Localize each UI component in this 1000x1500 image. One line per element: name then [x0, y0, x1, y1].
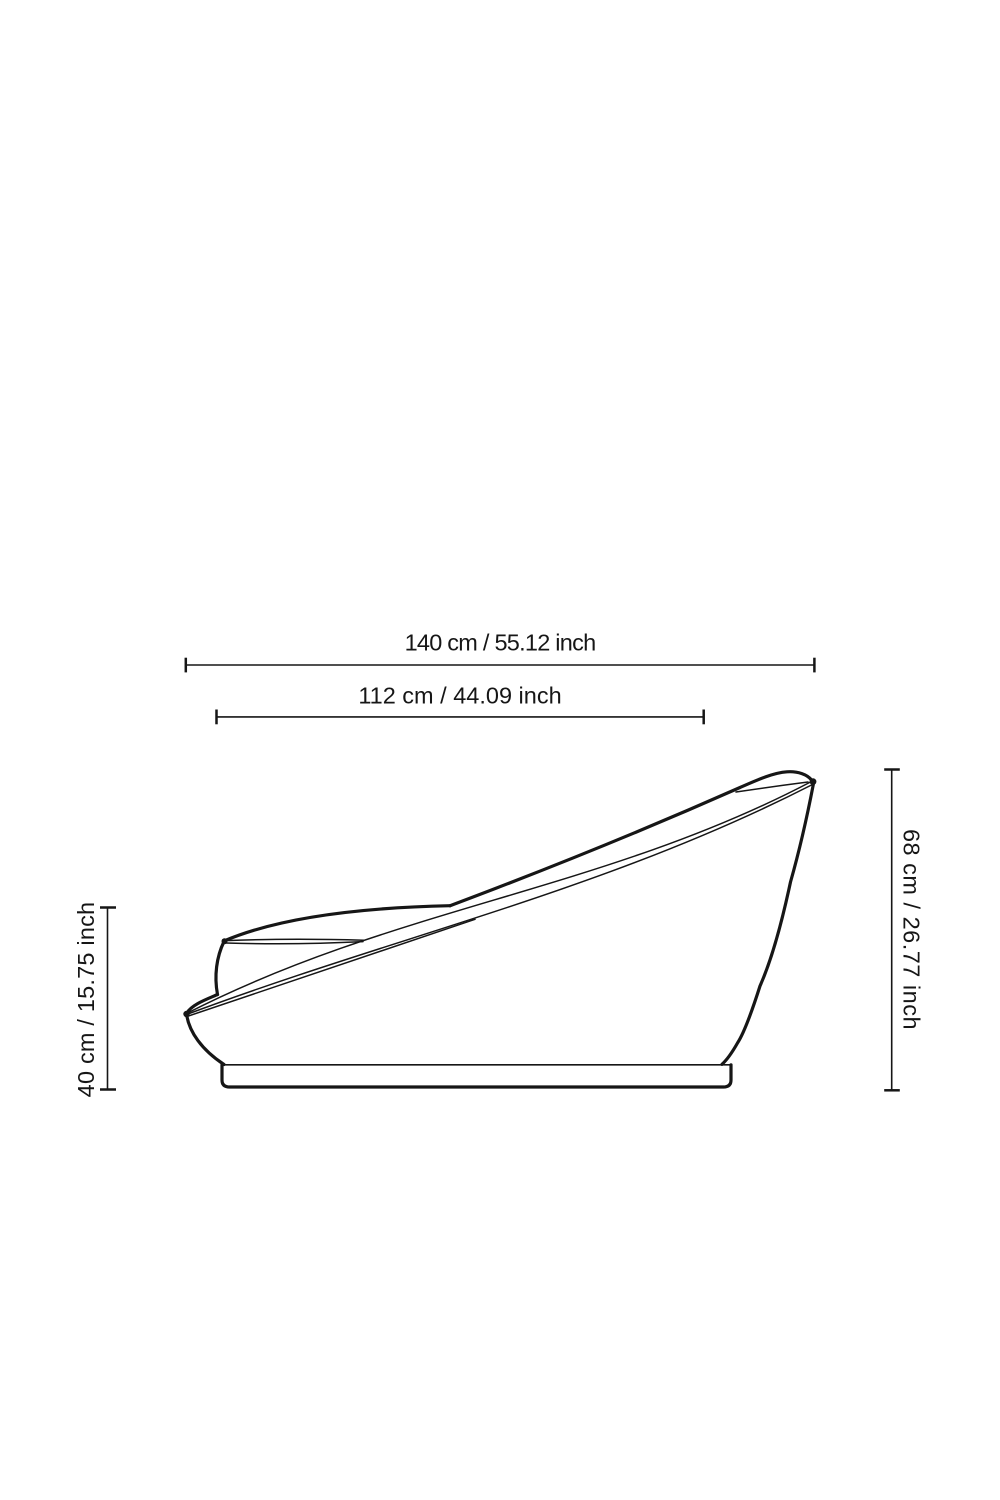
svg-text:40 cm / 15.75 inch: 40 cm / 15.75 inch [73, 902, 99, 1098]
svg-text:140 cm / 55.12 inch: 140 cm / 55.12 inch [405, 630, 596, 656]
svg-text:112 cm / 44.09 inch: 112 cm / 44.09 inch [358, 682, 561, 708]
svg-text:68 cm / 26.77 inch: 68 cm / 26.77 inch [899, 829, 925, 1030]
